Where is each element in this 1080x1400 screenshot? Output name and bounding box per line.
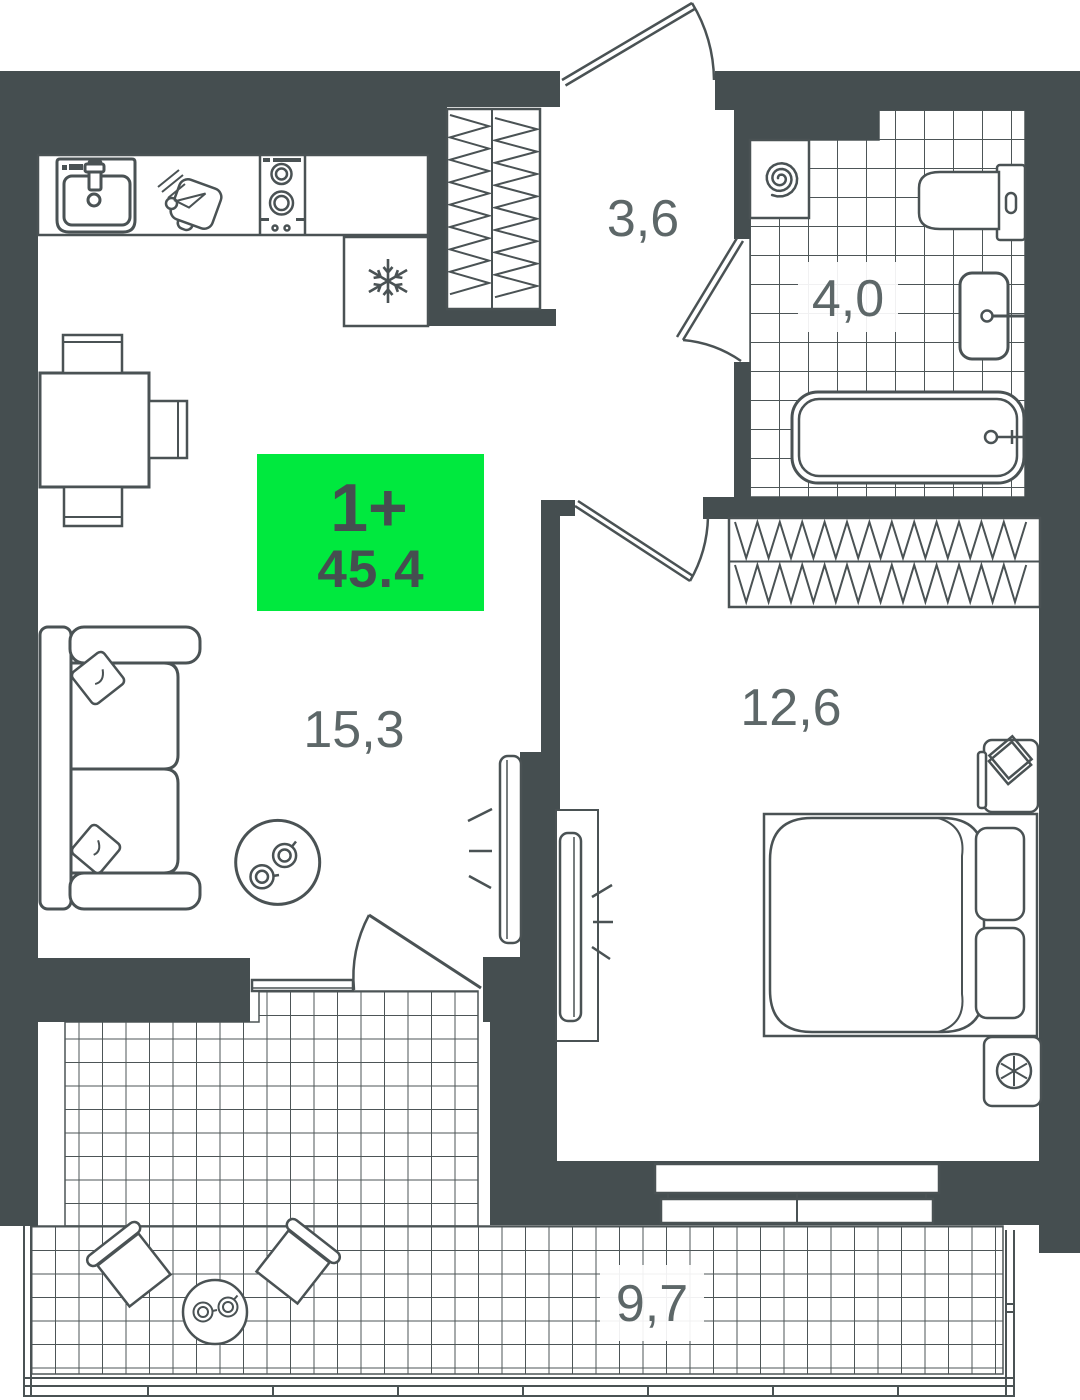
- svg-text:45.4: 45.4: [317, 540, 424, 599]
- svg-text:3,6: 3,6: [607, 190, 679, 248]
- svg-text:1+: 1+: [330, 470, 408, 546]
- svg-text:9,7: 9,7: [616, 1275, 688, 1333]
- svg-text:4,0: 4,0: [812, 270, 884, 328]
- svg-text:12,6: 12,6: [740, 679, 841, 737]
- svg-text:15,3: 15,3: [303, 701, 404, 759]
